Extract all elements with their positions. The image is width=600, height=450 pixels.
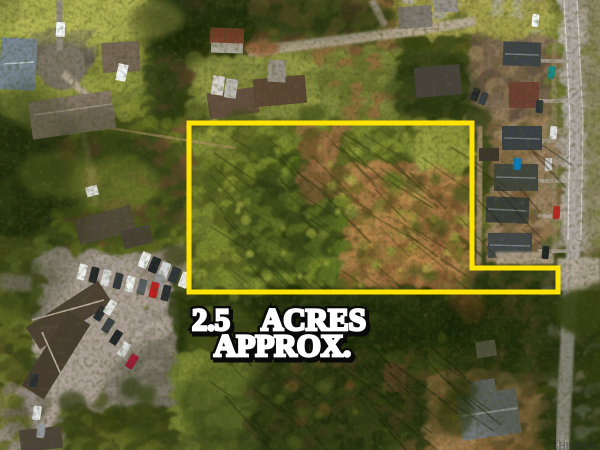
svg-text:APPROX.: APPROX. <box>214 328 351 363</box>
svg-text:SHINBOR: SHINBOR <box>552 441 599 450</box>
